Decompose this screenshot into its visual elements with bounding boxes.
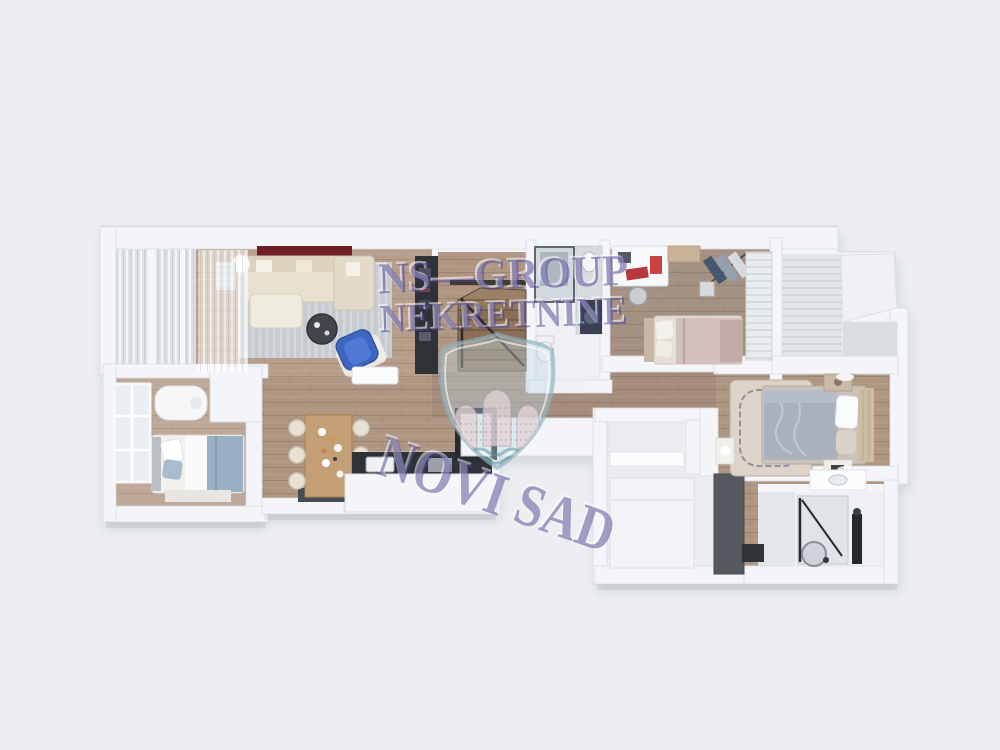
hall-doormat: [742, 544, 764, 562]
wall-band-face: [497, 418, 608, 456]
master-duvet-fold: [764, 390, 838, 403]
wall-closet-chunk: [210, 366, 262, 422]
tv-media-column: [415, 256, 438, 374]
sofa-pillow: [296, 260, 312, 272]
terrace-bottom-band: [772, 356, 898, 374]
bed1-blue-blanket: [207, 436, 243, 492]
wall-bedroom1-right: [246, 420, 262, 508]
bedroom1-rug: [165, 490, 231, 502]
hall-shelf: [610, 452, 684, 466]
shelf: [668, 246, 700, 262]
wall-masterbath-bottom: [744, 566, 898, 584]
bedroom1-window: [114, 384, 150, 482]
shower-tray: [540, 252, 568, 286]
wall-top-band: [102, 227, 838, 249]
bed1-headboard: [152, 437, 161, 491]
desk-chair: [629, 287, 647, 305]
terrace-recess: [843, 322, 897, 360]
floor-plan-canvas: NS—GROUP NS—GROUP NEKRETNINE NEKRETNINE: [0, 0, 1000, 750]
bedroom1-wardrobe-handle: [190, 397, 202, 409]
bed2: [644, 316, 742, 364]
laptop: [618, 252, 631, 263]
wall-hall-niche: [686, 420, 700, 474]
coffee-table-plate: [325, 331, 330, 336]
louver-wardrobe: [746, 252, 772, 360]
living-window-mullion: [148, 246, 154, 372]
master-bench: [716, 438, 734, 464]
kitchen-base-face: [345, 474, 497, 512]
kitchen-cooktop: [428, 458, 452, 472]
wall-masterbath-right: [884, 480, 898, 584]
sofa-pillow: [346, 262, 360, 276]
wall-hall-left: [593, 408, 607, 584]
fridge-column: [455, 408, 497, 460]
bed2-pillow: [655, 340, 673, 358]
bed1-pillow: [160, 438, 184, 463]
sofa-chaise: [250, 294, 302, 328]
living-window-mullion2: [180, 246, 185, 372]
nightstand-top: [824, 373, 854, 391]
masterbath-item: [823, 557, 829, 563]
floor-plan-render: NS—GROUP NS—GROUP NEKRETNINE NEKRETNINE: [0, 0, 1000, 750]
shower-head: [853, 508, 861, 516]
bed2-pillow: [655, 320, 674, 340]
bed1: [152, 435, 244, 493]
side-table: [352, 367, 398, 384]
masterbath-sink: [829, 475, 847, 485]
bed2-throw: [720, 320, 742, 362]
master-pillow2: [836, 430, 856, 454]
wall-bedroom1-bottom: [103, 506, 268, 522]
fridge: [461, 414, 491, 456]
terrace-floor-stripes: [782, 254, 842, 358]
curtain-sheer: [198, 250, 248, 372]
master-bedroom: [716, 373, 874, 482]
shower-column: [852, 514, 862, 564]
toilet-bowl: [537, 342, 553, 362]
floor-box: [700, 282, 714, 296]
wall-left: [100, 227, 116, 375]
masterbath-round-rug: [802, 542, 826, 566]
red-wall-box: [650, 256, 662, 274]
washer-door: [584, 310, 598, 324]
stair-opening-rail: [450, 280, 526, 285]
sofa-pillow: [256, 260, 272, 272]
master-headboard: [858, 388, 874, 462]
coffee-table-plate: [314, 322, 320, 328]
bathroom-door-opening: [544, 380, 584, 393]
bed1-pillow-blue: [162, 459, 183, 480]
coffee-table: [307, 314, 337, 344]
kitchen-sink: [366, 457, 394, 472]
bath-sink: [582, 252, 596, 272]
wall-hall-master-stub: [700, 408, 718, 476]
master-pillow: [835, 395, 859, 428]
master-bed: [762, 386, 874, 464]
hall-dark-wardrobe: [714, 474, 744, 574]
bed2-headboard: [644, 318, 654, 362]
hall-cabinet: [610, 478, 694, 568]
